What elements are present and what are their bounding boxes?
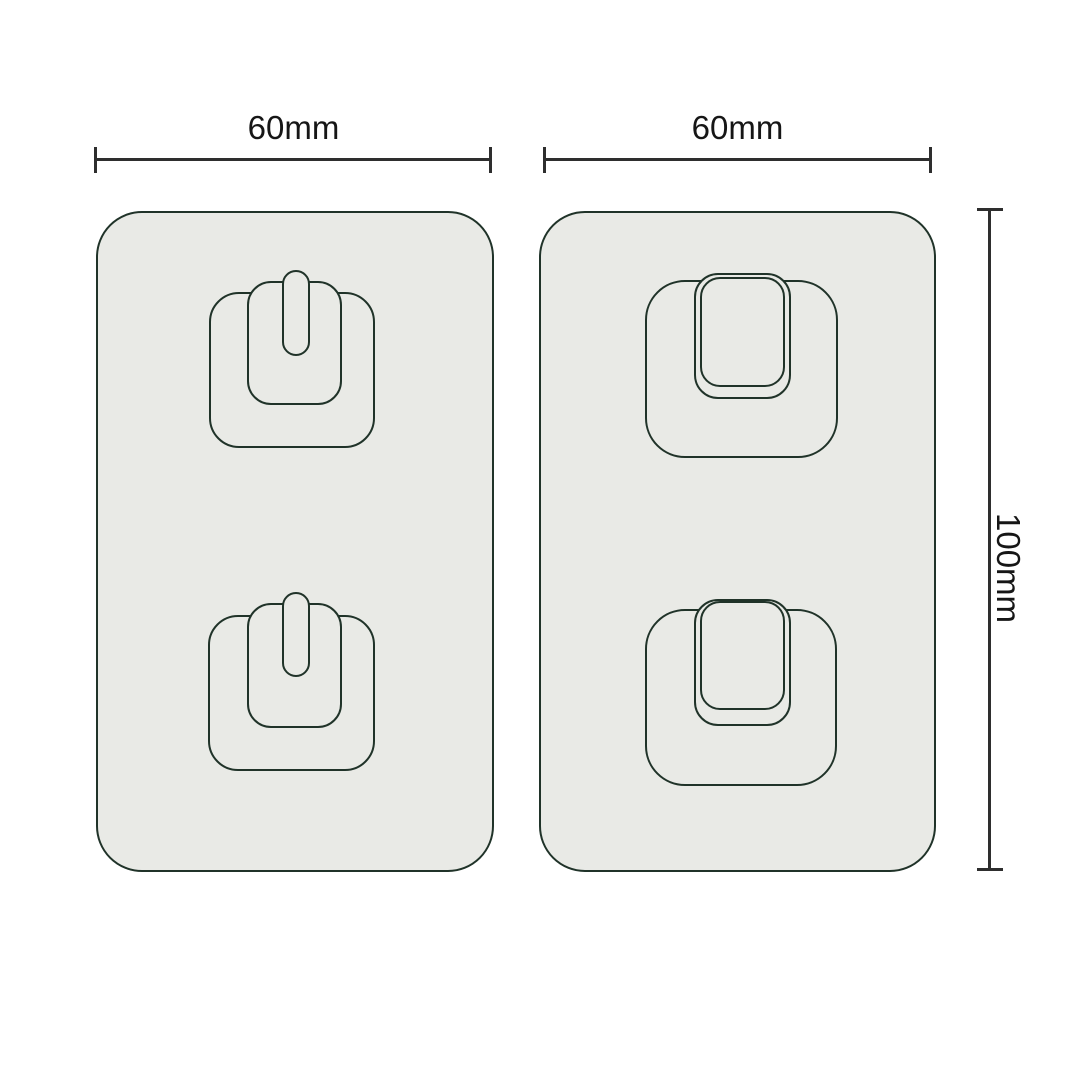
width-dimension-left-label: 60mm bbox=[95, 104, 492, 152]
left-pad-top-keyhole-slot bbox=[282, 270, 310, 356]
height-dimension-tick-top bbox=[977, 208, 1003, 211]
left-pad bbox=[96, 211, 494, 872]
width-dimension-right-label: 60mm bbox=[543, 104, 932, 152]
right-pad-top-tab-inner bbox=[700, 277, 785, 387]
width-dimension-right-line bbox=[543, 158, 932, 161]
height-dimension-label: 100mm bbox=[990, 513, 1026, 623]
width-dimension-left-line bbox=[95, 158, 492, 161]
width-dimension-left-tick-end bbox=[489, 147, 492, 173]
height-dimension-tick-bottom bbox=[977, 868, 1003, 871]
right-pad bbox=[539, 211, 936, 872]
width-dimension-left-tick-start bbox=[94, 147, 97, 173]
left-pad-bottom-keyhole-slot bbox=[282, 592, 310, 677]
right-pad-bottom-tab-inner bbox=[700, 601, 785, 710]
width-dimension-right-tick-end bbox=[929, 147, 932, 173]
width-dimension-right-tick-start bbox=[543, 147, 546, 173]
product-dimension-diagram: 60mm 60mm 100mm bbox=[0, 0, 1080, 1080]
